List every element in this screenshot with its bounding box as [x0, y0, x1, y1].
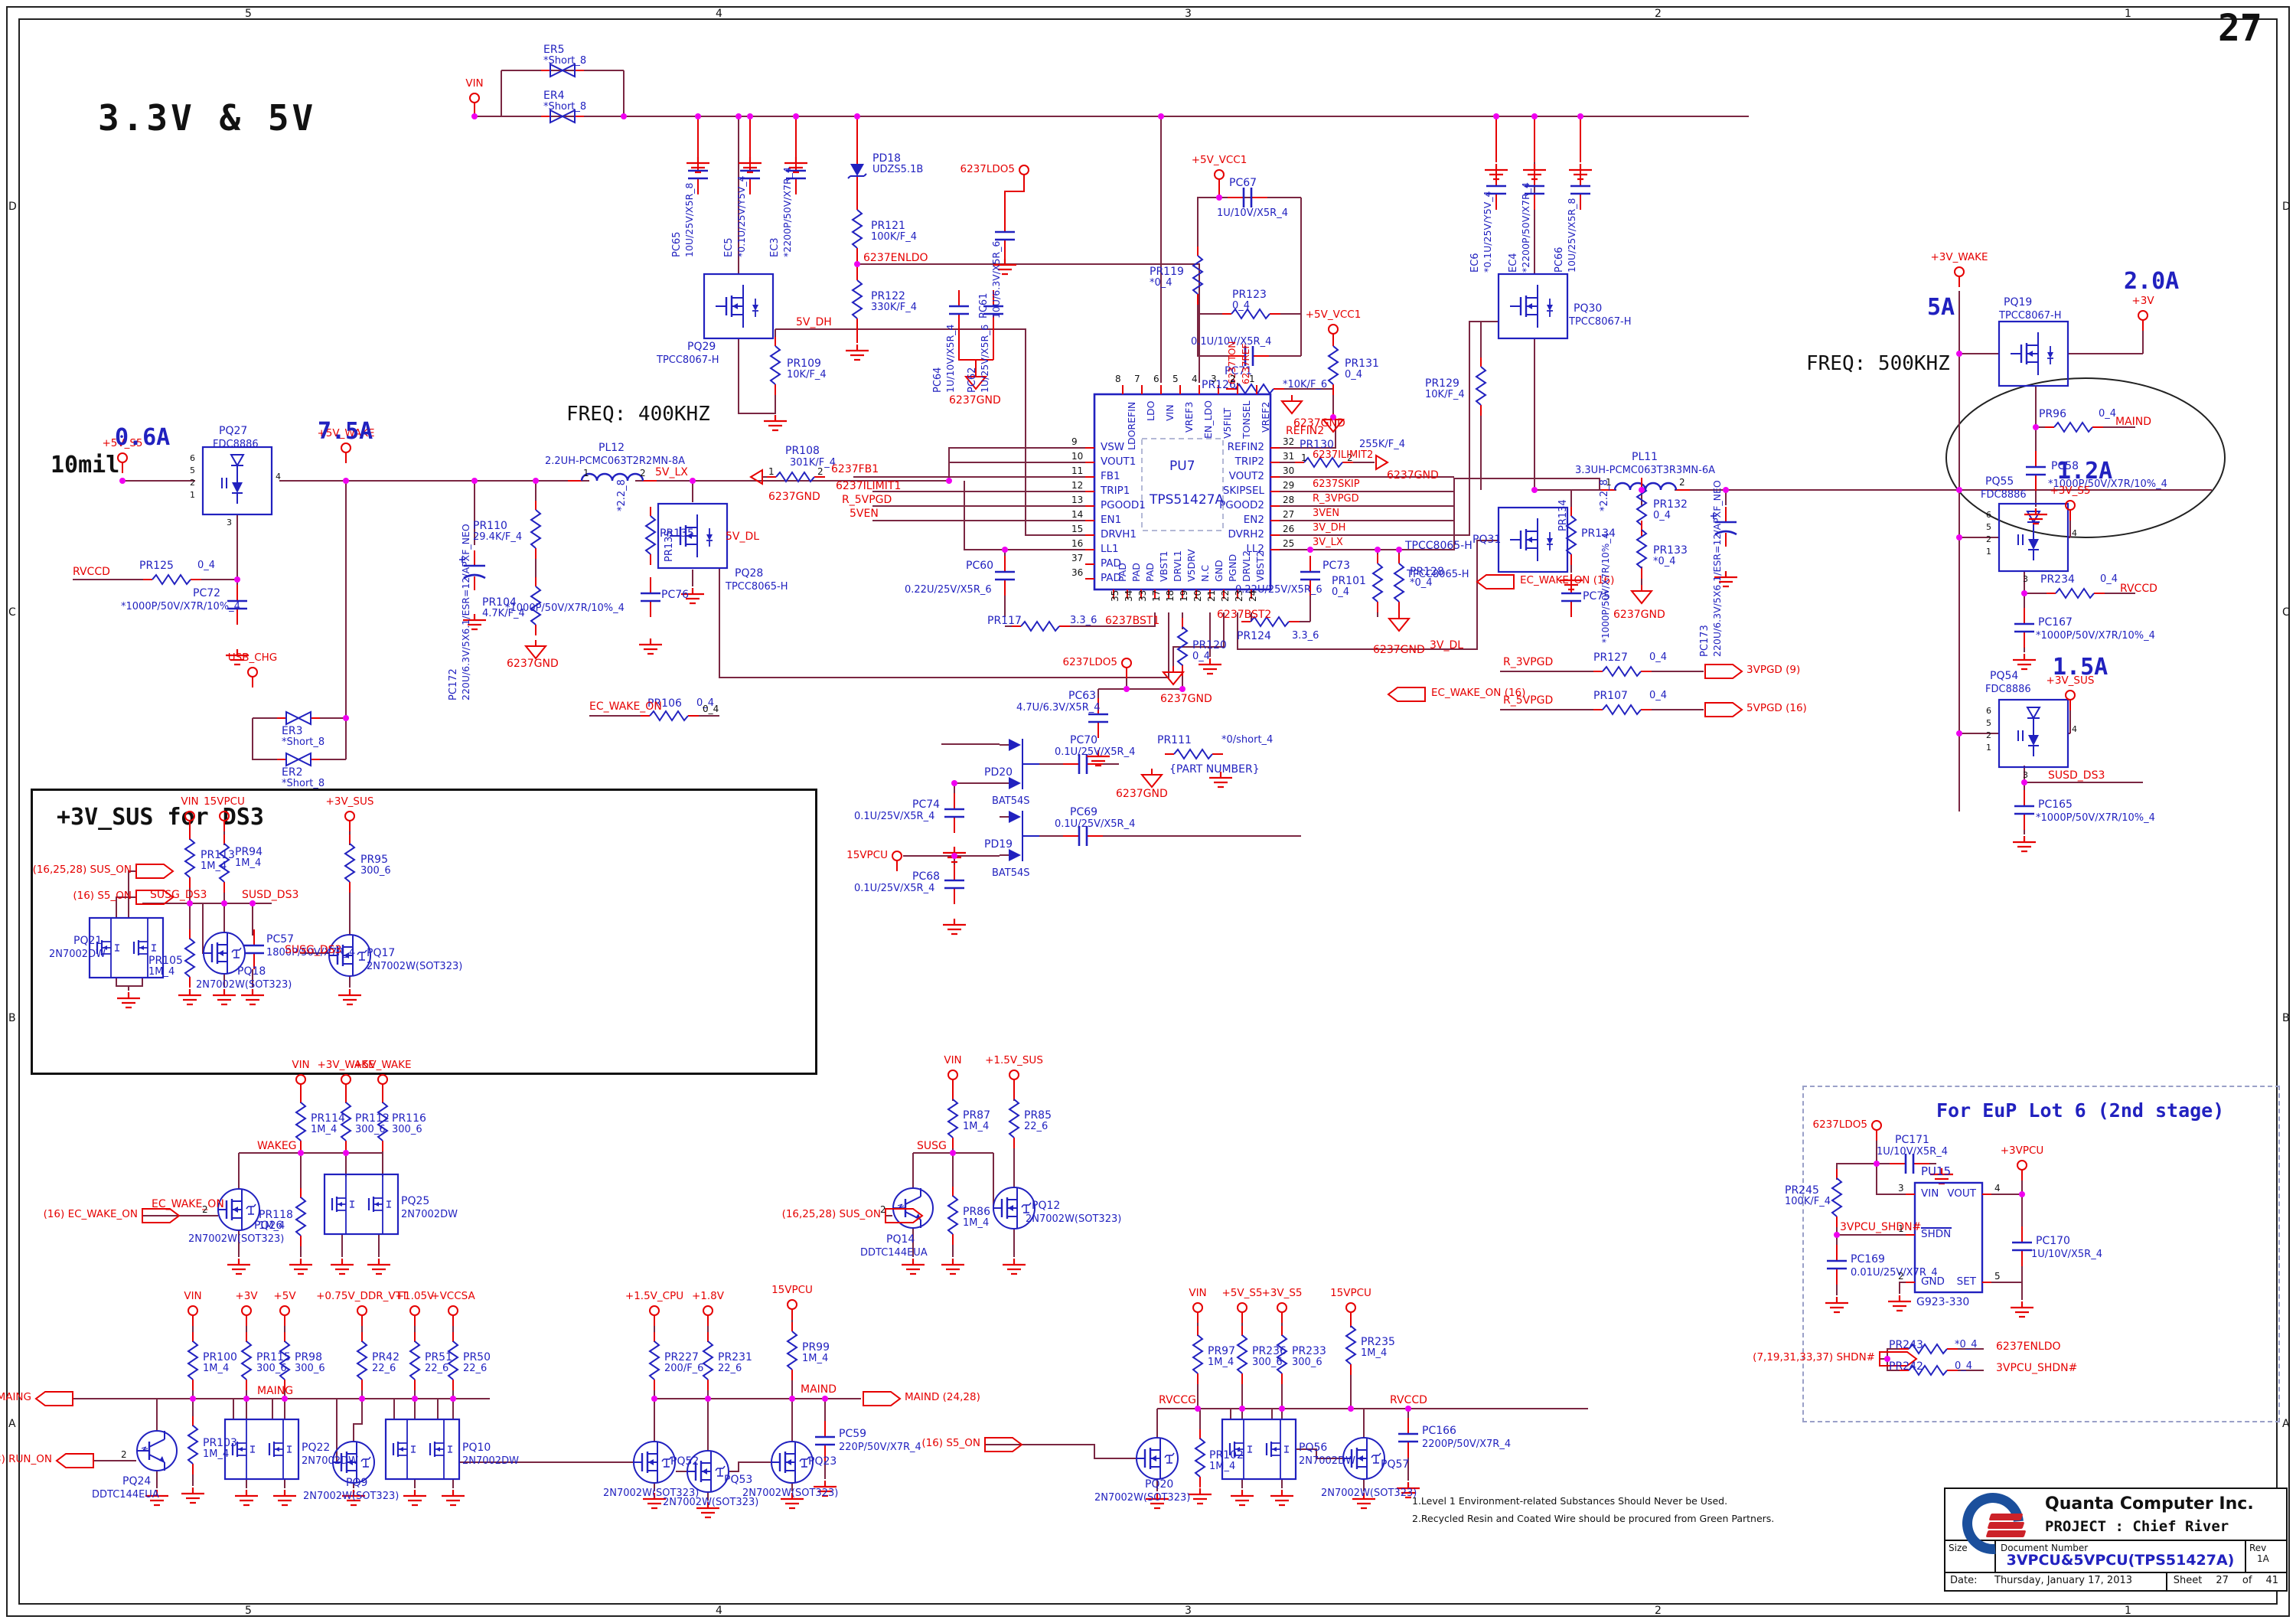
project-name: PROJECT : Chief River: [2045, 1520, 2229, 1535]
page-flag-label: (16,25,28) SUS_ON: [782, 1209, 881, 1220]
ic-pin-number: 2: [1898, 1272, 1904, 1282]
component-value: 2.2UH-PCMC063T2R2MN-8A: [545, 456, 685, 467]
date-label: Date:: [1945, 1573, 1991, 1590]
junction-dot: [2033, 424, 2039, 430]
component-PR111: [1165, 749, 1223, 759]
component-PR42: [357, 1332, 367, 1390]
ic-part: G923-330: [1916, 1297, 1969, 1308]
power-port-label: VIN: [944, 1055, 961, 1066]
net-label: SUSD_DS3: [242, 890, 298, 901]
component-ref: EC4: [1508, 253, 1519, 273]
power-port: [296, 1075, 305, 1095]
component-value: 1M_4: [802, 1354, 828, 1364]
junction-dot: [1531, 487, 1538, 493]
power-port-label: 6237LDO5: [1063, 657, 1118, 668]
svg-text:2: 2: [1986, 534, 1991, 544]
ic-pin-name: VBST1: [1159, 551, 1169, 582]
net-label: 2: [880, 1205, 886, 1215]
component-PR135: [646, 507, 655, 565]
component-ref: PQ29: [687, 341, 716, 353]
junction-dot: [1158, 113, 1164, 119]
net-label: 6237ILIMIT1: [836, 481, 901, 492]
power-port-label: VIN: [181, 796, 198, 807]
component-ref: PC173: [1700, 625, 1711, 657]
component-PR95: [345, 834, 354, 893]
component-ref: PC60: [966, 560, 993, 572]
junction-dot: [1956, 351, 1962, 357]
page-flag-label: (28) MAING: [0, 1392, 31, 1403]
ic-pin-name: VBST2: [1255, 551, 1265, 582]
component-value: *1000P/50V/X7R/10%_4: [2036, 813, 2155, 824]
component-value: FDC8886: [1981, 490, 2027, 501]
ic-pin-number: 36: [1071, 568, 1083, 578]
component-ref: PC166: [1422, 1425, 1456, 1437]
junction-dot: [1493, 113, 1499, 119]
component-PR102: [1195, 1429, 1205, 1487]
component-ref: PR242: [1889, 1361, 1923, 1373]
component-PC167: [2014, 608, 2034, 648]
power-port-label: +3V: [2131, 296, 2154, 306]
power-port: [1019, 165, 1029, 185]
power-port-label: +VCCSA: [431, 1291, 475, 1301]
component-ER3: [277, 712, 320, 724]
ground-icon: [1231, 1490, 1254, 1505]
component-ref: PQ55: [1985, 476, 2014, 488]
component-value: DDTC144EUA: [860, 1248, 928, 1259]
component-value: 10U/6.3V/X5R_6: [991, 241, 1001, 318]
page-flag-label: (16,25,28) SUS_ON: [33, 864, 132, 875]
power-port-label: +0.75V_DDR_VTT: [316, 1291, 408, 1301]
component-value: 220P/50V/X7R_4: [839, 1442, 921, 1453]
gnd-triangle-icon: [1632, 585, 1652, 603]
ic-pin-number: 21: [1207, 590, 1217, 602]
current-rating: 1.5A: [2053, 655, 2108, 680]
quanta-logo-stripe: [1988, 1522, 2025, 1529]
component-value: 2200P/50V/X7R_4: [1422, 1439, 1511, 1450]
component-value: 2N7002DW: [401, 1210, 458, 1220]
component-value: 1U/10V/X5R_4: [1217, 208, 1288, 219]
component-ref: PC59: [839, 1429, 866, 1440]
ground-icon: [213, 989, 236, 1004]
component-ref: PQ27: [219, 426, 247, 437]
component-value: *0_4: [1955, 1340, 1978, 1350]
power-port: [892, 851, 902, 871]
component-value: *1000P/50V/X7R/10%_4: [2036, 631, 2155, 642]
power-port-label: +3V_WAKE: [1930, 252, 1988, 263]
component-PQ24: [137, 1431, 177, 1471]
ic-pin-number: 1: [1249, 374, 1255, 384]
component-value: 1U/10V/X5R_4: [2031, 1249, 2102, 1260]
component-value: 0_4: [1649, 691, 1667, 701]
component-ref: PR95: [360, 854, 388, 866]
ic-pin-name: LDOREFIN: [1127, 402, 1137, 450]
component-value: 100K/F_4: [871, 232, 917, 243]
component-ref: PR96: [2039, 409, 2066, 420]
ic-pin-number: 32: [1283, 437, 1294, 447]
net-label: TPCC8065-H: [1405, 540, 1473, 552]
component-ref: PR100: [203, 1352, 237, 1363]
note-2: 2.Recycled Resin and Coated Wire should …: [1412, 1514, 1774, 1523]
power-port: [345, 811, 354, 831]
component-value: 1M_4: [148, 967, 174, 978]
junction-dot: [187, 900, 193, 906]
junction-dot: [951, 780, 957, 786]
component-ref: PR227: [664, 1352, 699, 1363]
net-label: 2: [817, 467, 823, 477]
ground-icon: [367, 1259, 390, 1274]
component-PR101: [1373, 554, 1382, 612]
component-value: 3.3_6: [1070, 616, 1097, 626]
junction-dot: [1834, 1232, 1840, 1238]
ic-pin-number: 26: [1283, 524, 1294, 534]
gnd-triangle-icon: [1142, 769, 1162, 787]
component-value: 2N7002W(SOT323): [303, 1491, 399, 1502]
component-PR118: [296, 1188, 305, 1246]
ground-icon: [1825, 1297, 1848, 1312]
component-value: 4.7U/6.3V/X5R_4: [1016, 703, 1101, 714]
component-value: TPCC8067-H: [1569, 317, 1632, 328]
component-value: FDC8886: [1985, 684, 2031, 695]
component-value: *0_4: [1410, 578, 1433, 589]
page-flag: [136, 864, 173, 878]
component-ref: PR112: [355, 1113, 390, 1125]
component-PQ26: [218, 1189, 259, 1230]
power-port-label: VIN: [1189, 1288, 1206, 1298]
component-value: 220U/6.3V/5X6.1/ESR=12/APXF_NEO: [461, 524, 471, 700]
component-PD19: [1000, 811, 1039, 861]
component-value: TPCC8067-H: [657, 355, 719, 366]
component-PR108: [767, 472, 825, 482]
component-ref: PR111: [1157, 735, 1192, 746]
component-ref: PQ21: [73, 936, 102, 947]
ic-ref: PU7: [1169, 460, 1195, 474]
net-label: 3V_DL: [1430, 640, 1463, 651]
ic-pin-name: SET: [1957, 1276, 1976, 1287]
component-ref: PR234: [2040, 574, 2075, 586]
ic-pin-number: 10: [1071, 452, 1083, 462]
junction-dot: [705, 1396, 711, 1402]
component-ref: PR97: [1208, 1346, 1235, 1357]
current-rating: 7.5A: [318, 420, 373, 444]
component-value: 2N7002DW: [49, 949, 106, 960]
component-value: *1000P/50V/X7R/10%_4: [505, 603, 625, 614]
component-PR234: [2047, 589, 2105, 598]
power-port: [2017, 1161, 2027, 1181]
sheet-label: Sheet: [2166, 1573, 2209, 1590]
net-label: 2: [202, 1205, 208, 1215]
power-port: [185, 811, 194, 831]
schematic-sheet: 5544332211DDCCBBAA 27 3.3V & 5V FREQ: 40…: [0, 0, 2296, 1623]
page-flag: [1388, 687, 1425, 701]
junction-dot: [343, 478, 349, 484]
component-PR133: [1637, 521, 1646, 579]
component-ref: PR131: [1345, 358, 1379, 370]
svg-text:4: 4: [276, 472, 281, 482]
net-label: PR135: [664, 530, 675, 562]
component-PC57: [244, 929, 264, 969]
component-value: 3.3_6: [1292, 631, 1319, 642]
ic-pin-number: 12: [1071, 481, 1083, 491]
component-value: 0_4: [1232, 301, 1250, 312]
junction-dot: [789, 1396, 795, 1402]
ic-pin-name: EN1: [1101, 514, 1121, 525]
component-ref: PR128: [1410, 567, 1444, 578]
component-value: *0.1U/25V/Y5V_4: [1482, 191, 1492, 273]
component-ref: PC165: [2038, 799, 2073, 811]
svg-text:4: 4: [2072, 528, 2077, 538]
component-PR227: [650, 1332, 659, 1390]
component-value: 1M_4: [235, 858, 261, 869]
net-label: {PART NUMBER}: [1169, 764, 1260, 776]
component-ref: PR113: [201, 850, 235, 861]
component-ref: PR243: [1889, 1340, 1923, 1351]
component-ref: PD20: [984, 767, 1013, 779]
component-ref: PC62: [967, 367, 978, 393]
ic-pin-number: 29: [1283, 481, 1294, 491]
ic-pin-number: 1: [1898, 1224, 1904, 1234]
ground-icon: [902, 1259, 925, 1274]
component-ref: PQ31: [1473, 534, 1501, 546]
page-flag: [863, 1392, 900, 1406]
ic-pin-name: PAD: [1117, 563, 1127, 582]
component-value: 0.22U/25V/X5R_6: [905, 585, 992, 596]
ic-pin-net: 3V_DH: [1313, 523, 1345, 534]
component-value: 2N7002W(SOT323): [1094, 1493, 1190, 1504]
component-value: 300_6: [256, 1363, 287, 1374]
net-label: RVCCD: [73, 567, 110, 578]
power-port: [378, 1075, 387, 1095]
component-PL11: [1601, 483, 1690, 490]
junction-dot: [471, 478, 478, 484]
component-PR85: [1009, 1090, 1019, 1148]
ic-pin-name: LDO: [1146, 400, 1156, 420]
ic-pin-name: VOUT: [1947, 1188, 1976, 1199]
current-rating: 0.6A: [115, 426, 170, 450]
component-value: 0_4: [2099, 409, 2116, 420]
ic-pin-name: GND: [1921, 1276, 1945, 1287]
component-PR121: [853, 201, 862, 259]
power-port: [1009, 1070, 1019, 1090]
component-PR87: [948, 1090, 957, 1148]
component-ref: PR99: [802, 1342, 830, 1354]
net-label: 5V_DL: [726, 531, 759, 543]
component-value: 2N7002W(SOT323): [1321, 1488, 1417, 1499]
power-port: [242, 1306, 251, 1326]
page-flag-label: (7,19,31,33,37) SHDN#: [1753, 1352, 1875, 1363]
component-ref: PQ12: [1032, 1200, 1060, 1212]
component-value: 0_4: [2100, 574, 2118, 585]
ground-icon: [764, 415, 787, 430]
component-ref: ER3: [282, 726, 302, 737]
component-ref: PQ23: [808, 1456, 837, 1468]
component-PQ22: [225, 1419, 298, 1479]
component-PR120: [1178, 618, 1187, 676]
ground-icon: [403, 1490, 426, 1505]
component-ref: PQ53: [724, 1474, 752, 1486]
power-port: [220, 811, 229, 831]
power-port-label: +5V_WAKE: [354, 1060, 411, 1070]
junction-dot: [1279, 1406, 1285, 1412]
component-ref: PQ17: [367, 948, 395, 959]
power-port-label: +5V: [273, 1291, 295, 1301]
junction-dot: [533, 478, 539, 484]
component-value: 1U/10V/X5R_4: [1877, 1147, 1948, 1158]
component-ref: PQ10: [462, 1442, 491, 1454]
power-port-label: 15VPCU: [1330, 1288, 1371, 1298]
ic-pin-name: VOUT1: [1101, 456, 1136, 467]
component-PC60: [995, 556, 1015, 596]
component-value: 29.4K/F_4: [473, 532, 522, 543]
ground-icon: [181, 1487, 204, 1503]
component-PC76: [641, 577, 660, 617]
junction-dot: [1195, 1406, 1201, 1412]
net-label: 5V_DH: [796, 317, 832, 328]
junction-dot: [343, 715, 349, 721]
date-value: Thursday, January 17, 2013: [1991, 1573, 2166, 1590]
page-flag: [57, 1454, 93, 1468]
component-PC67: [1228, 188, 1267, 207]
component-PC58: [2026, 451, 2046, 491]
component-value: 0_4: [1653, 511, 1671, 521]
net-label: 6237GND: [949, 395, 1001, 407]
ic-pin-number: 19: [1179, 590, 1189, 602]
ic-pin-name: VIN: [1921, 1188, 1939, 1199]
net-label: EC_WAKE_ON: [152, 1199, 224, 1210]
ic-pin-number: 37: [1071, 554, 1083, 563]
power-port-label: +3V_S5: [1261, 1288, 1302, 1298]
component-value: 10K/F_4: [1425, 390, 1465, 400]
ic-pin-number: 6: [1153, 374, 1159, 384]
junction-dot: [695, 113, 701, 119]
component-PR113: [185, 830, 194, 888]
power-port: [357, 1306, 367, 1326]
component-value: 0_4: [1345, 370, 1362, 380]
ic-pin-name: VSW: [1101, 442, 1124, 452]
component-value: 0.1U/25V/X5R_4: [1055, 747, 1135, 758]
component-PR236: [1238, 1326, 1247, 1384]
junction-dot: [1531, 113, 1538, 119]
component-ref: PR123: [1232, 289, 1267, 301]
component-ref: PR132: [1653, 499, 1688, 511]
component-PR109: [771, 337, 780, 395]
power-port: [703, 1306, 713, 1326]
ground-icon: [289, 1259, 312, 1274]
component-ref: PR120: [1192, 640, 1227, 651]
net-label: 1: [1606, 478, 1612, 488]
component-value: TPCC8065-H: [726, 582, 788, 593]
component-PR127: [1593, 667, 1652, 676]
company-name: Quanta Computer Inc.: [2045, 1495, 2254, 1513]
component-value: *2200P/50V/X7R_4: [1521, 182, 1531, 273]
junction-dot: [747, 113, 753, 119]
junction-dot: [471, 113, 478, 119]
ic-pin-number: 4: [1192, 374, 1198, 384]
component-value: 220U/6.3V/5X6.1/ESR=12/APXF_NEO: [1712, 480, 1722, 657]
ground-icon: [241, 989, 264, 1004]
ic-part: TPS51427A: [1150, 494, 1224, 508]
component-value: *Short_8: [543, 102, 586, 113]
power-port-label: +3VPCU: [2001, 1145, 2044, 1156]
component-ref: PR231: [718, 1352, 752, 1363]
component-PQ10: [386, 1419, 459, 1479]
component-ref: PQ30: [1574, 303, 1602, 315]
ic-pin-number: 18: [1166, 590, 1176, 602]
ic-pin-number: 20: [1193, 590, 1203, 602]
page-flag: [1705, 703, 1742, 717]
ground-icon: [846, 345, 869, 360]
power-port: [1277, 1303, 1287, 1323]
net-label: 1: [583, 469, 589, 478]
component-PR128: [1394, 554, 1404, 612]
svg-text:6: 6: [1986, 706, 1991, 716]
component-ref: EC5: [724, 237, 735, 257]
ground-icon: [273, 1490, 296, 1505]
junction-dot: [221, 900, 227, 906]
net-label: WAKEG: [257, 1141, 297, 1152]
component-ref: PQ22: [302, 1442, 330, 1454]
page-flag-label: 3VPGD (9): [1746, 665, 1800, 675]
net-label: 3VPCU_SHDN#: [1996, 1363, 2077, 1374]
component-PR115: [242, 1332, 251, 1390]
gnd-triangle-icon: [751, 470, 762, 484]
power-port: [1346, 1303, 1355, 1323]
component-value: 0_4: [197, 560, 215, 571]
net-label: 6237GND: [507, 658, 559, 670]
net-label: 3VPCU_SHDN#: [1840, 1222, 1921, 1233]
power-port: [448, 1306, 458, 1326]
component-ref: PC65: [672, 232, 683, 257]
ic-pin-number: 35: [1110, 590, 1120, 602]
ic-pin-number: 28: [1283, 495, 1294, 505]
ic-pin-name: FB1: [1101, 471, 1120, 482]
component-value: 3.3UH-PCMC063T3R3MN-6A: [1575, 465, 1715, 476]
ic-pin-net: 3V_LX: [1313, 537, 1343, 548]
power-port: [1215, 170, 1224, 190]
ic-pin-name: LL1: [1101, 544, 1119, 554]
ground-icon: [941, 1259, 964, 1274]
net-label: R_5VPGD: [1503, 695, 1553, 707]
component-PR235: [1346, 1317, 1355, 1375]
component-value: DDTC144EUA: [92, 1490, 159, 1501]
power-port: [410, 1306, 419, 1326]
junction-dot: [651, 1396, 657, 1402]
component-PQ30: [1499, 274, 1567, 338]
component-value: 300_6: [360, 866, 391, 877]
ic-pin-number: 33: [1138, 590, 1148, 602]
svg-text:3: 3: [2023, 770, 2028, 780]
ic-pin-number: 4: [1994, 1184, 2001, 1194]
component-ref: PC63: [1068, 691, 1096, 702]
component-PQ29: [704, 274, 773, 338]
component-ref: PQ18: [237, 966, 266, 978]
component-ref: PR124: [1237, 631, 1271, 642]
svg-text:6: 6: [190, 453, 195, 463]
component-value: *Short_8: [543, 56, 586, 67]
component-PQ54: 652143: [1986, 700, 2077, 780]
net-label: R_3VPGD: [1503, 657, 1553, 668]
power-port-label: +5V_VCC1: [1192, 155, 1247, 165]
power-port: [188, 1306, 197, 1326]
component-ref: ER2: [282, 767, 302, 779]
quanta-logo-stripe: [1989, 1514, 2024, 1520]
component-ref: PR118: [259, 1210, 293, 1221]
ic-pin-name: REFIN2: [1228, 442, 1264, 452]
component-PR105: [185, 929, 194, 988]
component-ref: PR127: [1593, 652, 1628, 664]
component-PQ23: [771, 1442, 813, 1483]
junction-dot: [822, 1396, 828, 1402]
power-port: [341, 1075, 351, 1095]
